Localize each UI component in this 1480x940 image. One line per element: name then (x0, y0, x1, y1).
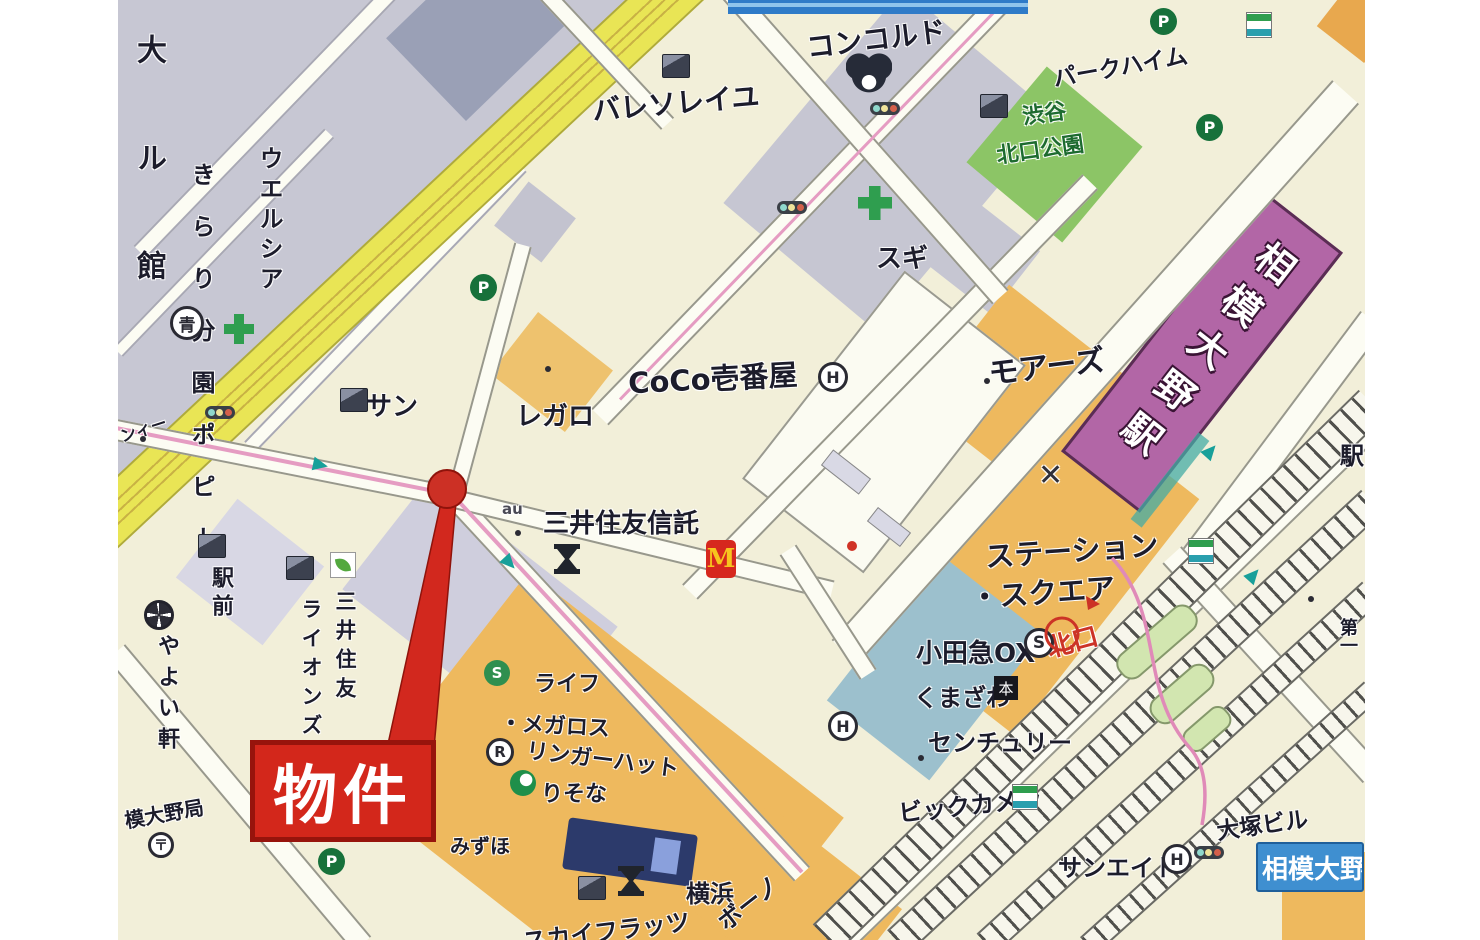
crossing-red-dot (847, 541, 857, 551)
parking-icon: P (318, 848, 345, 875)
property-label-box: 物件 (250, 740, 436, 842)
pink-route-path (1112, 558, 1205, 825)
marker-overlay (0, 0, 1480, 940)
map-canvas: 相模大野駅 物件 相模大野 大ル館 きらり分園ポピー ウエルシア バレソレイユ … (0, 0, 1480, 940)
property-location-dot (428, 470, 466, 508)
property-pointer-wedge (388, 498, 456, 748)
north-exit-arrow-icon (1086, 596, 1100, 610)
north-exit-ring (1046, 618, 1078, 650)
property-label: 物件 (273, 745, 413, 837)
left-margin (0, 0, 118, 940)
right-margin (1365, 0, 1480, 940)
